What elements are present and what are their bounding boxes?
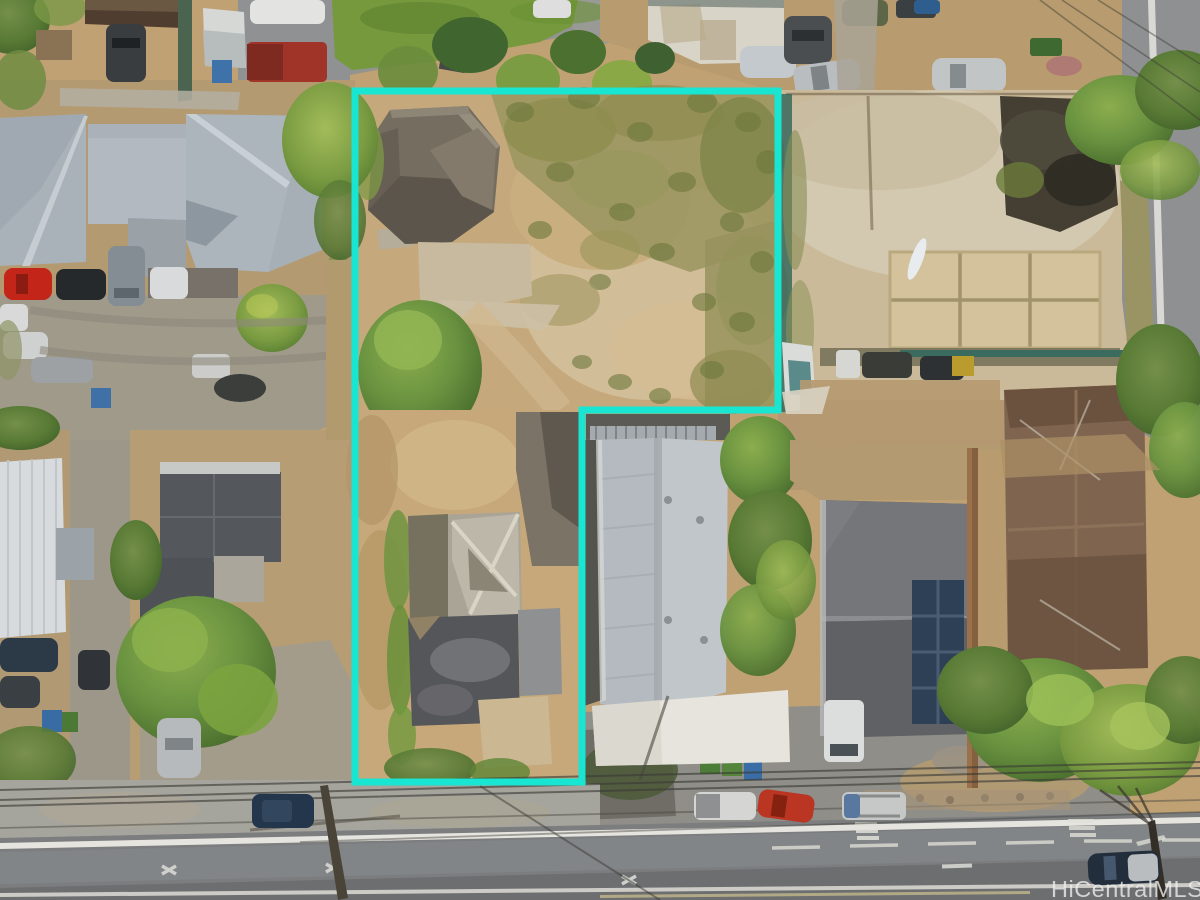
svg-text:HiCentralMLS: HiCentralMLS xyxy=(1051,876,1200,900)
